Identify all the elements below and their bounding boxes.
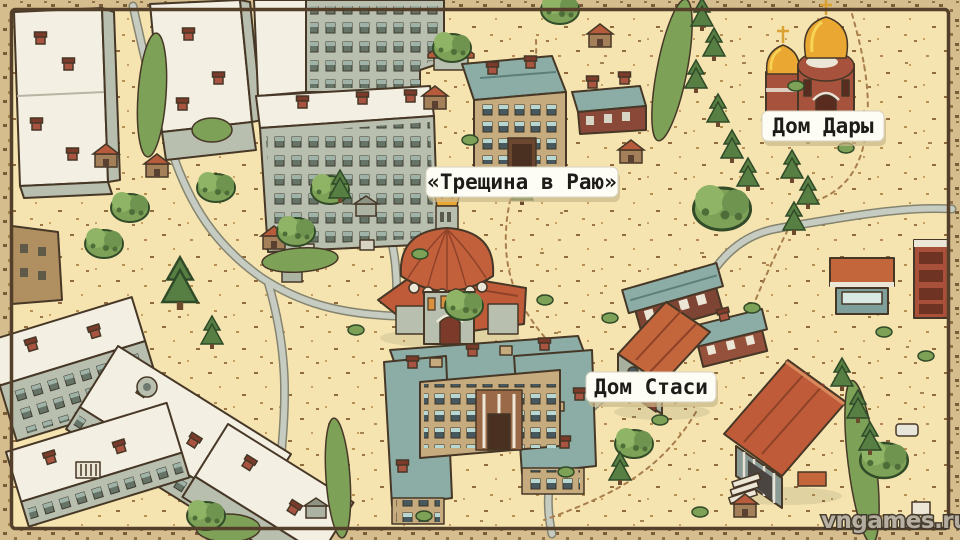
map-canvas: «Трещина в Раю» Дом Дары Дом Стаси vngam… [0, 0, 960, 540]
game-map: «Трещина в Раю» Дом Дары Дом Стаси vngam… [0, 0, 960, 540]
watermark: vngames.ru [821, 508, 960, 534]
car [896, 424, 918, 436]
marker-label: Дом Дары [772, 114, 874, 138]
building-five-story [462, 56, 566, 172]
building-kiosk [830, 258, 894, 314]
map-marker-dom-stasi[interactable]: Дом Стаси [586, 372, 718, 407]
map-marker-dom-dary[interactable]: Дом Дары [762, 111, 886, 146]
building-left-edge [12, 226, 62, 304]
building-garages [914, 240, 948, 318]
map-marker-crack-in-paradise[interactable]: «Трещина в Раю» [426, 167, 620, 202]
marker-label: «Трещина в Раю» [427, 170, 617, 194]
marker-label: Дом Стаси [594, 375, 708, 399]
